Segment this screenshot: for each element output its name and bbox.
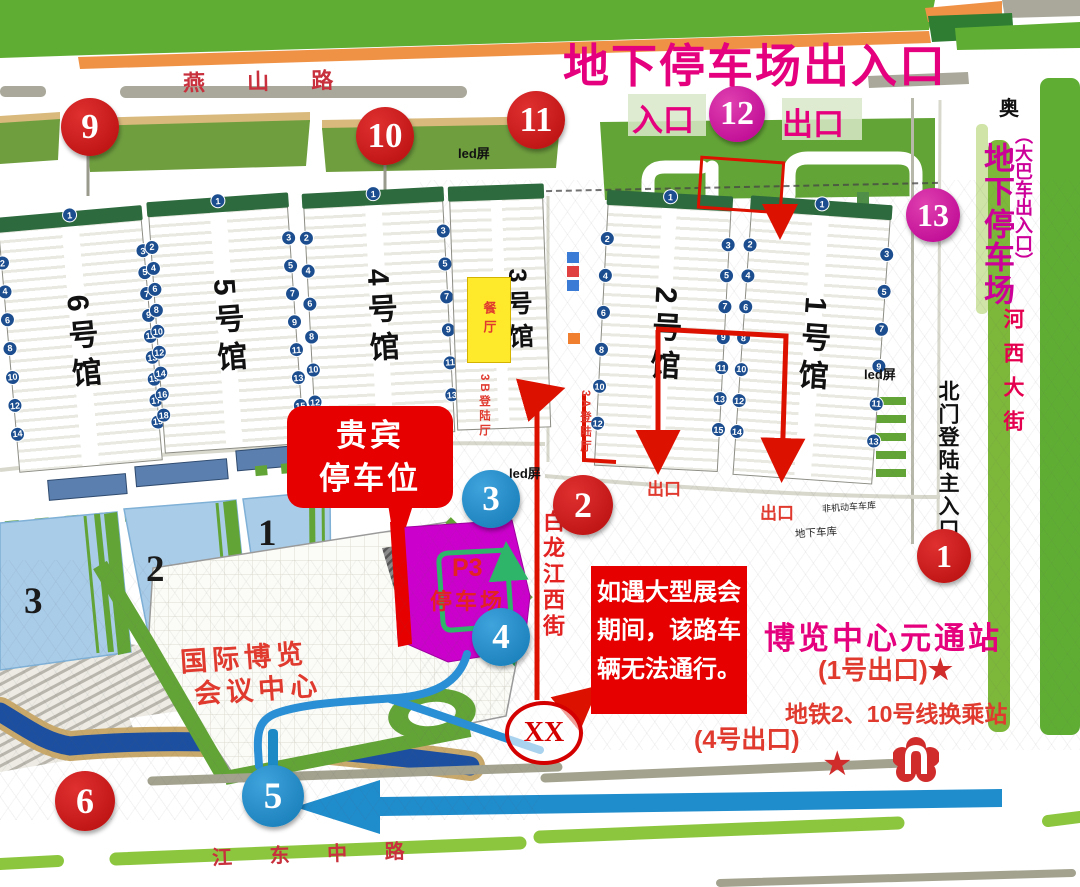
gate-4: 4 bbox=[300, 263, 316, 279]
expo-parking-map: 地下停车场出入口 入口 出口 燕 山 路 江 东 中 路 河西大街 白龙江西街 … bbox=[0, 0, 1080, 887]
gate-12: 12 bbox=[731, 393, 747, 409]
gate-2: 2 bbox=[599, 231, 615, 247]
marker-5: 5 bbox=[242, 765, 304, 827]
hall-4号馆: 4号馆12468101235791113 bbox=[303, 189, 456, 440]
gate-10: 10 bbox=[305, 362, 321, 378]
marker-9: 9 bbox=[61, 98, 119, 156]
hall-name-label: 1号馆 bbox=[786, 295, 837, 399]
gate-6: 6 bbox=[596, 305, 612, 321]
hall-name-label: 6号馆 bbox=[54, 293, 107, 397]
gate-4: 4 bbox=[597, 268, 613, 284]
hall-6号馆: 6号馆1246810121435791113151719 bbox=[0, 207, 163, 473]
gate-2: 2 bbox=[299, 230, 315, 246]
star-icon: ★ bbox=[928, 654, 953, 685]
hall-5号馆: 5号馆1246810121416183579111315 bbox=[147, 194, 304, 453]
exit-label: 出口 bbox=[782, 99, 844, 144]
gate-4: 4 bbox=[740, 268, 756, 284]
entrance-label: 入口 bbox=[632, 95, 694, 140]
gate-12: 12 bbox=[151, 344, 167, 360]
gate-6: 6 bbox=[0, 312, 16, 328]
led-screen-label: led屏 bbox=[864, 364, 896, 383]
warning-line1: 如遇大型展会 bbox=[597, 574, 741, 612]
gate-2: 2 bbox=[0, 255, 11, 271]
vip-parking-callout: 贵宾 停车位 bbox=[287, 406, 453, 508]
marker-10: 10 bbox=[356, 107, 414, 165]
metro-exit1-label: (1号出口) bbox=[818, 655, 928, 685]
pool-label-1: 1 bbox=[258, 512, 277, 555]
gate-6: 6 bbox=[738, 299, 754, 315]
marker-11: 11 bbox=[507, 91, 565, 149]
road-yanshan: 燕 山 路 bbox=[183, 63, 352, 98]
hall-name-label: 2号馆 bbox=[638, 286, 687, 389]
gate-18: 18 bbox=[156, 407, 172, 423]
gate-8: 8 bbox=[148, 302, 164, 318]
facility-icon bbox=[567, 252, 579, 263]
metro-transfer-label: 地铁2、10号线换乘站 bbox=[785, 695, 1007, 729]
led-screen-label: led屏 bbox=[509, 463, 541, 482]
exit-label-a: 出口 bbox=[647, 475, 681, 500]
hall-2号馆: 2号馆1246810123579111315 bbox=[594, 192, 732, 472]
hall-name-label: 4号馆 bbox=[355, 267, 404, 370]
marker-6: 6 bbox=[55, 771, 115, 831]
warning-line2: 期间，该路车 bbox=[597, 612, 741, 650]
hall-1号馆: 1号馆1246810121435791113 bbox=[732, 197, 891, 484]
marker-3: 3 bbox=[462, 470, 520, 528]
gate-4: 4 bbox=[145, 260, 161, 276]
facility-icon bbox=[567, 280, 579, 291]
gate-10: 10 bbox=[592, 378, 608, 394]
underground-garage-label: 地下车库 bbox=[795, 524, 838, 542]
metro-exit4-label: (4号出口) bbox=[694, 720, 800, 756]
north-gate-label: 北门登陆主入口 bbox=[932, 380, 962, 541]
road-hexi: 河西大街 bbox=[997, 308, 1027, 444]
gate-9: 9 bbox=[715, 329, 731, 345]
gate-8: 8 bbox=[2, 340, 18, 356]
hall-roof-strip bbox=[448, 183, 544, 201]
pool-label-2: 2 bbox=[146, 548, 165, 591]
metro-logo-icon bbox=[893, 736, 939, 784]
gate-8: 8 bbox=[304, 329, 320, 345]
page-title: 地下停车场出入口 bbox=[563, 30, 947, 96]
star-icon: ★ bbox=[822, 744, 852, 784]
marker-4: 4 bbox=[472, 608, 530, 666]
gate-14: 14 bbox=[9, 426, 25, 442]
facility-icon bbox=[568, 333, 580, 344]
gate-14: 14 bbox=[729, 424, 745, 440]
exit-label-b: 出口 bbox=[760, 499, 794, 524]
gate-6: 6 bbox=[147, 281, 163, 297]
gate-2: 2 bbox=[742, 237, 758, 253]
gate-2: 2 bbox=[144, 239, 160, 255]
blocked-road-badge: XX bbox=[505, 701, 583, 765]
landing-hall-3b: 3B登陆厅 bbox=[476, 374, 492, 438]
facility-icon bbox=[567, 266, 579, 277]
ao-label: 奥 bbox=[999, 92, 1019, 121]
underground-parking-label: 地下停车场 bbox=[974, 142, 1019, 307]
gate-10: 10 bbox=[150, 323, 166, 339]
gate-16: 16 bbox=[154, 386, 170, 402]
pool-label-3: 3 bbox=[24, 580, 43, 623]
restaurant-box: 餐厅 bbox=[467, 277, 511, 363]
gate-6: 6 bbox=[302, 296, 318, 312]
restaurant-label: 餐厅 bbox=[480, 301, 499, 339]
marker-2: 2 bbox=[553, 475, 613, 535]
gate-8: 8 bbox=[594, 341, 610, 357]
led-screen-label: led屏 bbox=[458, 143, 490, 162]
marker-13: 13 bbox=[906, 188, 960, 242]
p3-label-line1: P3 bbox=[452, 554, 483, 583]
gate-10: 10 bbox=[733, 361, 749, 377]
vip-line1: 贵宾 bbox=[336, 414, 404, 457]
gate-10: 10 bbox=[4, 369, 20, 385]
street-bailongjiang: 白龙江西街 bbox=[536, 510, 568, 640]
marker-1: 1 bbox=[917, 529, 971, 583]
gate-4: 4 bbox=[0, 284, 13, 300]
landing-hall-3a: 3A登陆厅 bbox=[577, 390, 593, 454]
hall-name-label: 5号馆 bbox=[201, 277, 252, 381]
road-closed-warning: 如遇大型展会 期间，该路车 辆无法通行。 bbox=[591, 566, 747, 714]
gate-12: 12 bbox=[7, 397, 23, 413]
gate-14: 14 bbox=[153, 365, 169, 381]
vip-line2: 停车位 bbox=[319, 457, 421, 500]
warning-line3: 辆无法通行。 bbox=[597, 651, 741, 689]
